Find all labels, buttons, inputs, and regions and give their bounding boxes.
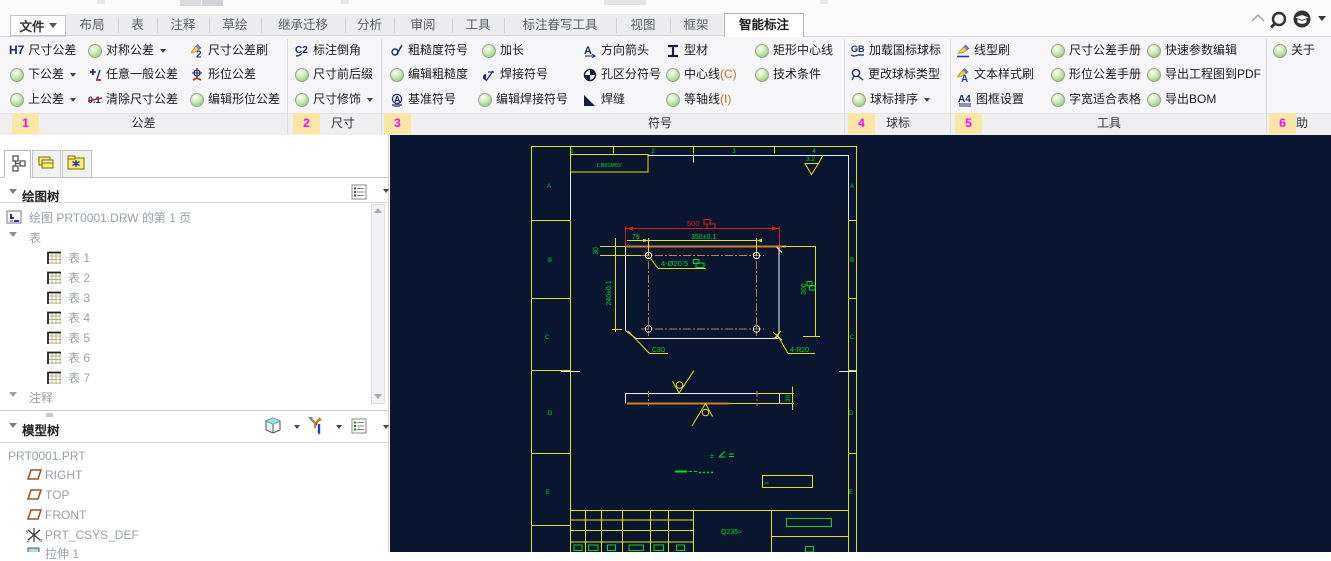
svg-text:300: 300 xyxy=(801,283,808,295)
svg-text:x: x xyxy=(40,538,43,543)
svg-text:4-R20: 4-R20 xyxy=(790,347,809,354)
svg-text:C: C xyxy=(850,335,855,341)
svg-text:75: 75 xyxy=(632,234,640,241)
svg-text:A: A xyxy=(961,74,968,82)
svg-text:A: A xyxy=(850,184,854,190)
svg-text:A: A xyxy=(584,45,592,57)
svg-text:A: A xyxy=(394,94,401,104)
svg-text:500: 500 xyxy=(687,219,700,228)
svg-text:E: E xyxy=(849,490,853,496)
svg-text:≈: ≈ xyxy=(765,480,769,487)
svg-text:B: B xyxy=(850,258,854,264)
svg-text:Q235≈: Q235≈ xyxy=(721,529,742,536)
svg-text:A4: A4 xyxy=(958,94,971,105)
svg-text:2: 2 xyxy=(196,49,202,58)
svg-text:D: D xyxy=(849,411,854,417)
svg-text:C: C xyxy=(545,335,550,341)
svg-text:A: A xyxy=(547,184,551,190)
svg-text:350±0.1: 350±0.1 xyxy=(691,234,716,241)
svg-text:E: E xyxy=(546,490,550,496)
svg-text:D: D xyxy=(548,411,553,417)
svg-text:240±0.1: 240±0.1 xyxy=(606,280,613,305)
svg-text:B: B xyxy=(548,258,552,264)
svg-text:30: 30 xyxy=(785,395,792,403)
svg-text:4-Ø20.5: 4-Ø20.5 xyxy=(661,259,688,268)
svg-text:3.2: 3.2 xyxy=(806,156,815,163)
svg-text:C30: C30 xyxy=(652,347,665,354)
svg-text:GB: GB xyxy=(851,44,865,54)
svg-text:1:B81M5V: 1:B81M5V xyxy=(596,163,622,169)
svg-text:30: 30 xyxy=(593,247,600,255)
svg-text:±: ± xyxy=(710,453,714,460)
